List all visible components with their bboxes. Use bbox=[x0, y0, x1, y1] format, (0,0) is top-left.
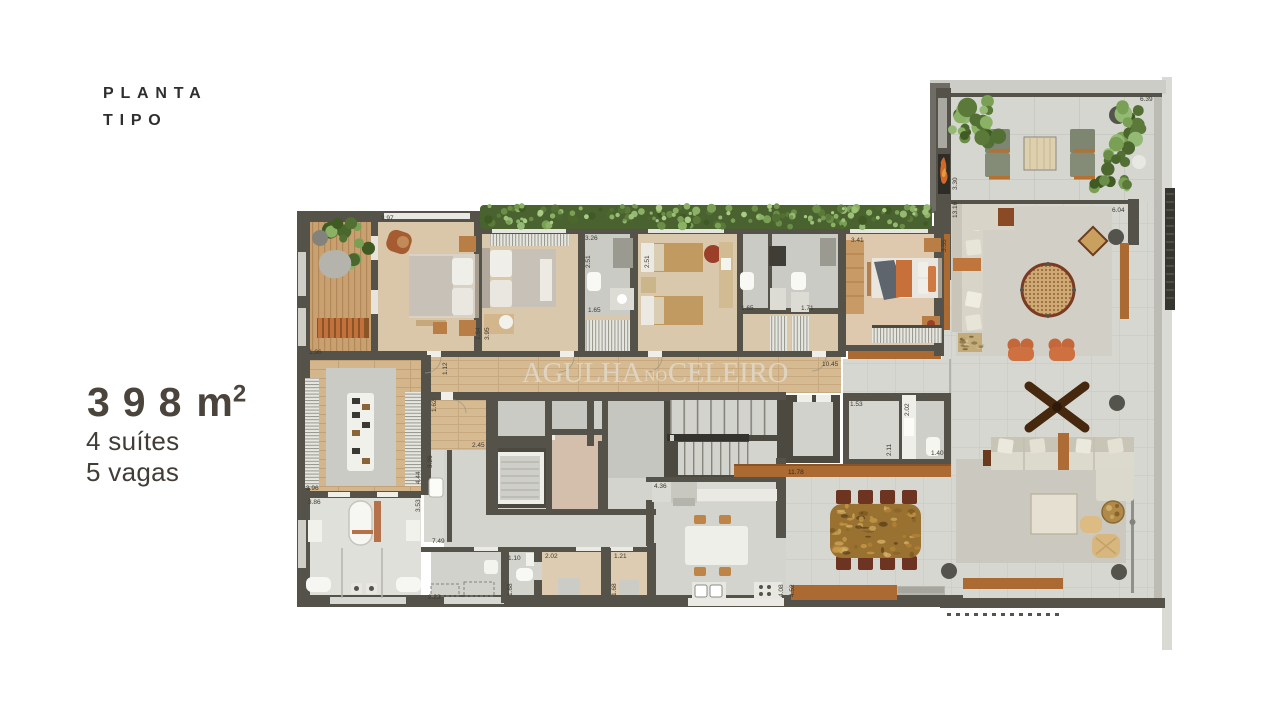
svg-text:3.96: 3.96 bbox=[306, 485, 319, 492]
svg-text:3.97: 3.97 bbox=[381, 215, 394, 222]
svg-text:AGULHA: AGULHA bbox=[522, 358, 643, 389]
svg-text:1.12: 1.12 bbox=[442, 362, 449, 375]
svg-text:6.04: 6.04 bbox=[1112, 207, 1125, 214]
svg-text:3.86: 3.86 bbox=[308, 499, 321, 506]
svg-text:3.30: 3.30 bbox=[952, 177, 959, 190]
svg-text:4.36: 4.36 bbox=[654, 483, 667, 490]
svg-text:1.65: 1.65 bbox=[741, 305, 754, 312]
svg-text:4.52: 4.52 bbox=[789, 584, 796, 597]
svg-text:10.45: 10.45 bbox=[822, 361, 839, 368]
svg-text:NO: NO bbox=[644, 368, 667, 385]
svg-text:1.96: 1.96 bbox=[309, 349, 322, 356]
svg-text:1.71: 1.71 bbox=[801, 305, 814, 312]
svg-text:1.65: 1.65 bbox=[588, 307, 601, 314]
svg-text:2.23: 2.23 bbox=[428, 594, 441, 601]
svg-text:7.49: 7.49 bbox=[432, 538, 445, 545]
svg-text:1.10: 1.10 bbox=[508, 555, 521, 562]
svg-text:3.26: 3.26 bbox=[585, 235, 598, 242]
svg-text:1.64: 1.64 bbox=[475, 327, 482, 340]
svg-text:2.02: 2.02 bbox=[545, 553, 558, 560]
svg-text:4.08: 4.08 bbox=[778, 584, 785, 597]
svg-text:2.51: 2.51 bbox=[644, 255, 651, 268]
svg-text:2.11: 2.11 bbox=[886, 443, 893, 456]
svg-text:13.16: 13.16 bbox=[952, 201, 959, 218]
svg-text:6.39: 6.39 bbox=[1140, 96, 1153, 103]
svg-text:1.68: 1.68 bbox=[611, 583, 618, 596]
svg-text:2.45: 2.45 bbox=[472, 442, 485, 449]
svg-text:3.26: 3.26 bbox=[427, 455, 434, 468]
svg-text:4.44: 4.44 bbox=[415, 471, 422, 484]
svg-text:3.53: 3.53 bbox=[415, 499, 422, 512]
svg-text:1.53: 1.53 bbox=[850, 401, 863, 408]
svg-text:1.62: 1.62 bbox=[431, 399, 438, 412]
svg-text:1.21: 1.21 bbox=[614, 553, 627, 560]
svg-text:2.51: 2.51 bbox=[585, 255, 592, 268]
svg-text:1.68: 1.68 bbox=[507, 583, 514, 596]
svg-text:2.02: 2.02 bbox=[904, 403, 911, 416]
svg-text:1.40: 1.40 bbox=[931, 450, 944, 457]
svg-text:11.78: 11.78 bbox=[788, 469, 804, 476]
svg-text:3.55: 3.55 bbox=[941, 239, 948, 252]
svg-text:3.95: 3.95 bbox=[484, 327, 491, 340]
svg-text:3.41: 3.41 bbox=[851, 237, 864, 244]
svg-text:CELEIRO: CELEIRO bbox=[668, 358, 788, 389]
